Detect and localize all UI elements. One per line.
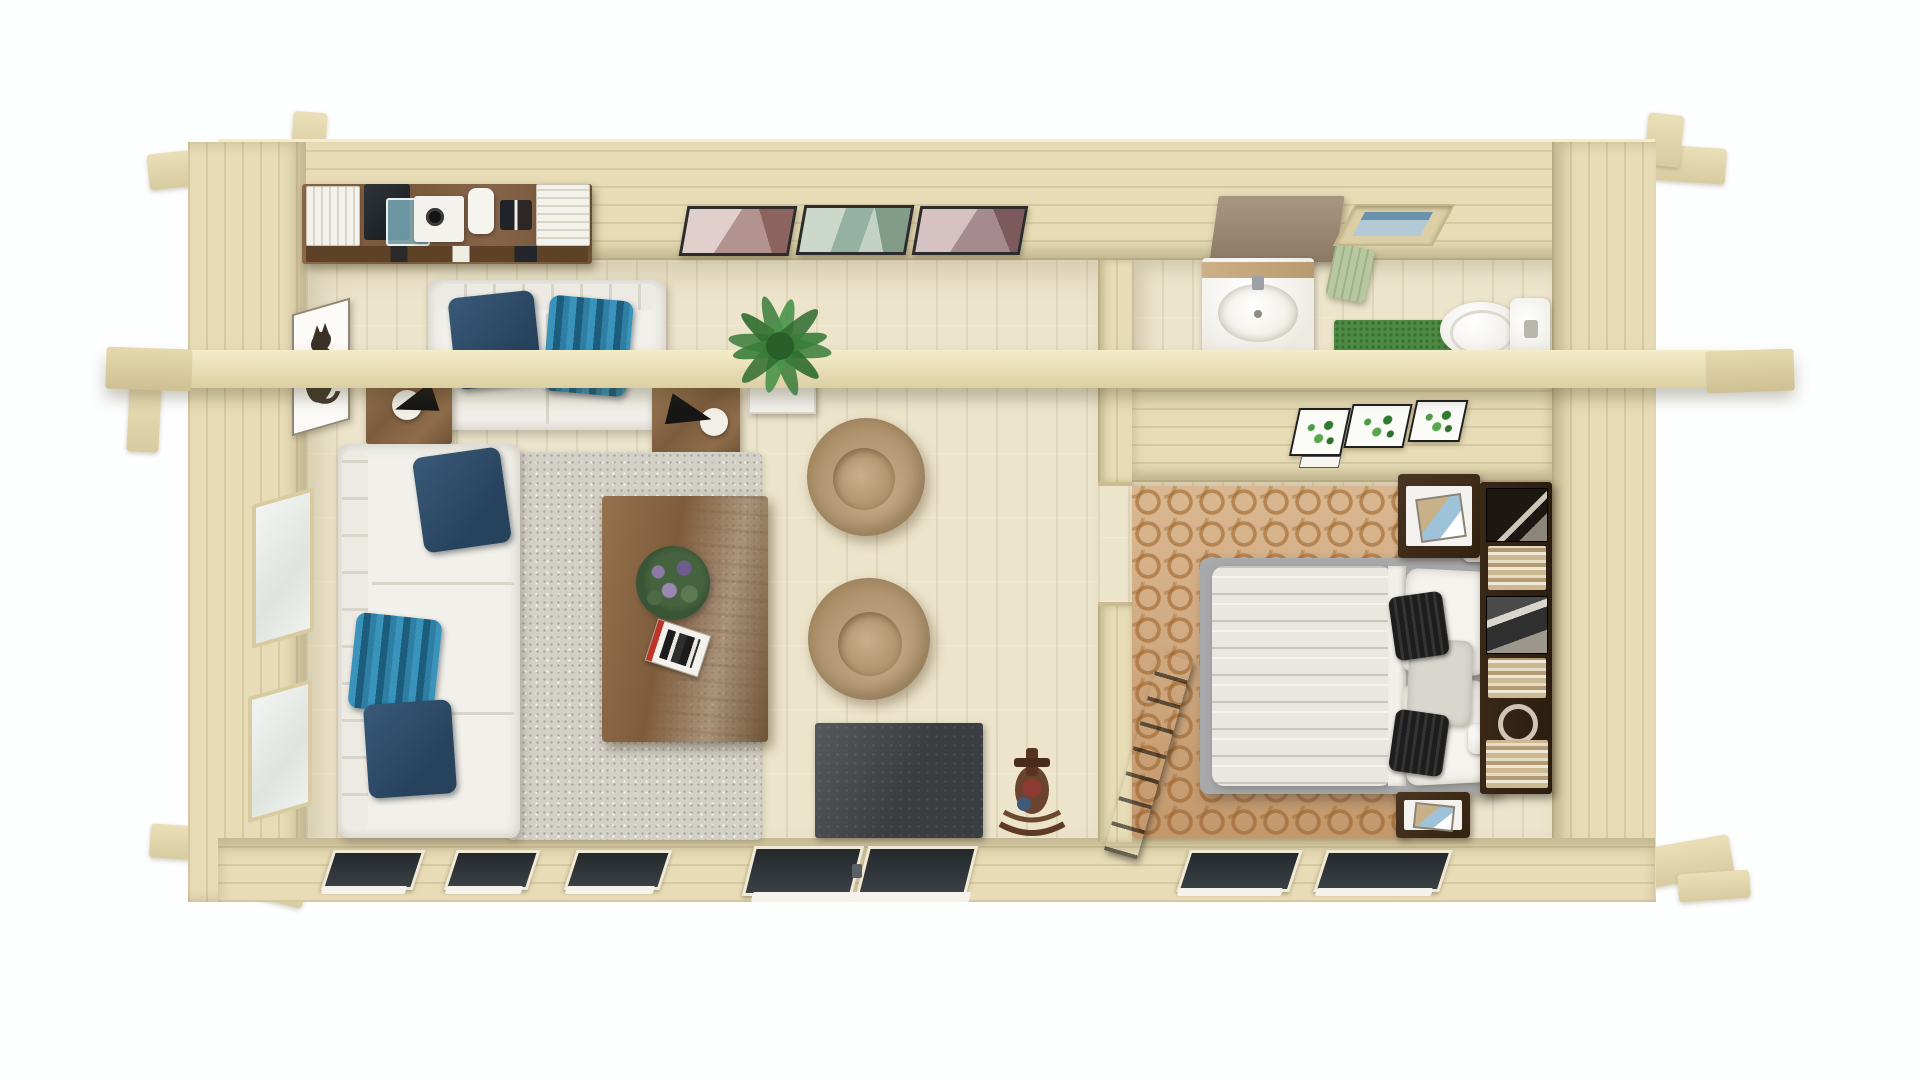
magazine-cover-art (659, 629, 701, 668)
sofa-pillow-navy-bottom (363, 699, 457, 799)
washbasin-drain (1254, 310, 1262, 318)
nightstand-bottom (1396, 792, 1470, 838)
south-window-2-sill (445, 886, 524, 894)
skylight-glass (1352, 212, 1433, 236)
bookshelf-books-row-1 (1488, 546, 1546, 590)
botanical-print-3 (1408, 400, 1469, 442)
south-window-1-sill (321, 886, 408, 894)
desk-trinkets (500, 200, 532, 230)
bean-bag-top-crease (833, 448, 895, 510)
bed-pillow-black-top (1388, 591, 1450, 662)
patio-door-right-pane (856, 846, 978, 896)
collar-beam-end-east (1705, 348, 1794, 393)
bedroom-south-window-2-sill (1315, 888, 1434, 896)
bean-bag-top (807, 418, 925, 536)
bookshelf-books-row-2 (1488, 658, 1546, 698)
east-wall (1552, 142, 1656, 902)
south-window-3-sill (565, 886, 656, 894)
sofa-pillow-navy-top (412, 446, 513, 553)
roof-overhang-southeast (1677, 870, 1751, 903)
bathroom-wall-cabinet (1209, 196, 1344, 262)
coffee-table (602, 496, 768, 742)
floorplan-canvas (0, 0, 1920, 1080)
washbasin-counter (1202, 258, 1314, 352)
white-figurine (468, 188, 494, 234)
rocking-horse (988, 742, 1076, 838)
doorway-opening-floor (1098, 482, 1132, 602)
collar-beam-end-west (105, 347, 192, 392)
patio-door-handle (852, 864, 862, 878)
botanical-print-1 (1289, 408, 1351, 456)
bookshelf-ornament-ring (1498, 704, 1538, 744)
bookshelf-books-row-3 (1486, 740, 1548, 788)
nightstand-bottom-decor (1413, 802, 1455, 832)
west-window-2 (248, 679, 312, 823)
charcoal-rug (815, 723, 983, 838)
camera-lens (426, 208, 444, 226)
patio-door-threshold (751, 892, 971, 902)
mountain-print-1 (679, 206, 798, 256)
bean-bag-bottom (808, 578, 930, 700)
botanical-caption-card (1299, 456, 1342, 468)
flower-bouquet (636, 546, 710, 620)
bookshelf-photo-frame-2 (1486, 596, 1548, 654)
lower-shelf-gadgets (306, 246, 588, 262)
wall-desk-shelf (302, 184, 592, 264)
bedroom-south-window-1 (1176, 850, 1303, 892)
nightstand-top (1398, 474, 1480, 558)
toilet-cistern-slot (1524, 320, 1538, 338)
bedroom-south-window-2 (1313, 850, 1453, 892)
bean-bag-bottom-crease (838, 612, 902, 676)
bed-duvet (1212, 566, 1392, 786)
south-window-1 (321, 850, 426, 890)
bed-pillow-black-bottom (1388, 709, 1450, 778)
book-stack-right (536, 184, 590, 246)
sofa-seat-seam-1 (372, 582, 514, 585)
south-window-2 (444, 850, 541, 890)
bookshelf-photo-frame-1 (1486, 488, 1548, 542)
patio-door-left-pane (742, 846, 864, 896)
botanical-print-2 (1343, 404, 1412, 448)
mountain-print-2 (796, 205, 915, 255)
collar-beam (106, 350, 1794, 388)
palm-plant (700, 266, 860, 426)
beam-bracket-west (126, 385, 161, 453)
bookshelf (1480, 482, 1552, 794)
bedroom-south-window-1-sill (1177, 888, 1284, 896)
mountain-print-3 (912, 206, 1029, 255)
washbasin-faucet (1252, 276, 1264, 290)
south-window-3 (564, 850, 673, 890)
nightstand-top-decor (1415, 493, 1467, 543)
west-window-1 (252, 487, 314, 649)
book-stack-left (306, 186, 360, 246)
